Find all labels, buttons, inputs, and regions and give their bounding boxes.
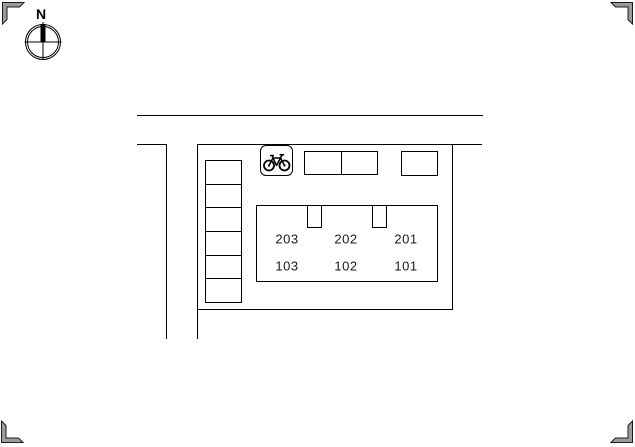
- property-boundary-right: [452, 144, 453, 310]
- stall-cell: [206, 161, 241, 184]
- road-edge-left-top: [137, 144, 167, 145]
- building-entrance-notch: [372, 206, 387, 228]
- bicycle-parking-shed: [260, 145, 293, 176]
- parking-space: [305, 152, 341, 174]
- parking-space: [341, 152, 378, 174]
- road-edge-left-vertical: [166, 144, 167, 339]
- unit-label-201: 201: [394, 232, 417, 247]
- stall-cell: [206, 255, 241, 279]
- property-boundary-bottom: [197, 309, 453, 310]
- parking-space-pair: [304, 151, 378, 175]
- unit-label-202: 202: [334, 232, 357, 247]
- compass-rose-icon: [21, 20, 65, 64]
- compass: N: [21, 6, 65, 64]
- unit-label-203: 203: [275, 232, 298, 247]
- corner-mark-top-right-icon: [610, 2, 633, 25]
- unit-label-103: 103: [275, 259, 298, 274]
- stall-column: [205, 160, 242, 303]
- road-edge-top: [137, 115, 483, 116]
- stall-cell: [206, 207, 241, 231]
- stall-cell: [206, 184, 241, 208]
- parking-space-single: [401, 151, 438, 176]
- unit-label-101: 101: [394, 259, 417, 274]
- property-boundary-top: [197, 144, 482, 145]
- bicycle-icon: [261, 146, 292, 175]
- building-entrance-notch: [307, 206, 322, 228]
- stall-cell: [206, 231, 241, 255]
- unit-label-102: 102: [334, 259, 357, 274]
- site-plan-canvas: N: [0, 0, 635, 447]
- corner-mark-bottom-right-icon: [610, 420, 633, 443]
- corner-mark-bottom-left-icon: [1, 420, 24, 443]
- stall-cell: [206, 278, 241, 302]
